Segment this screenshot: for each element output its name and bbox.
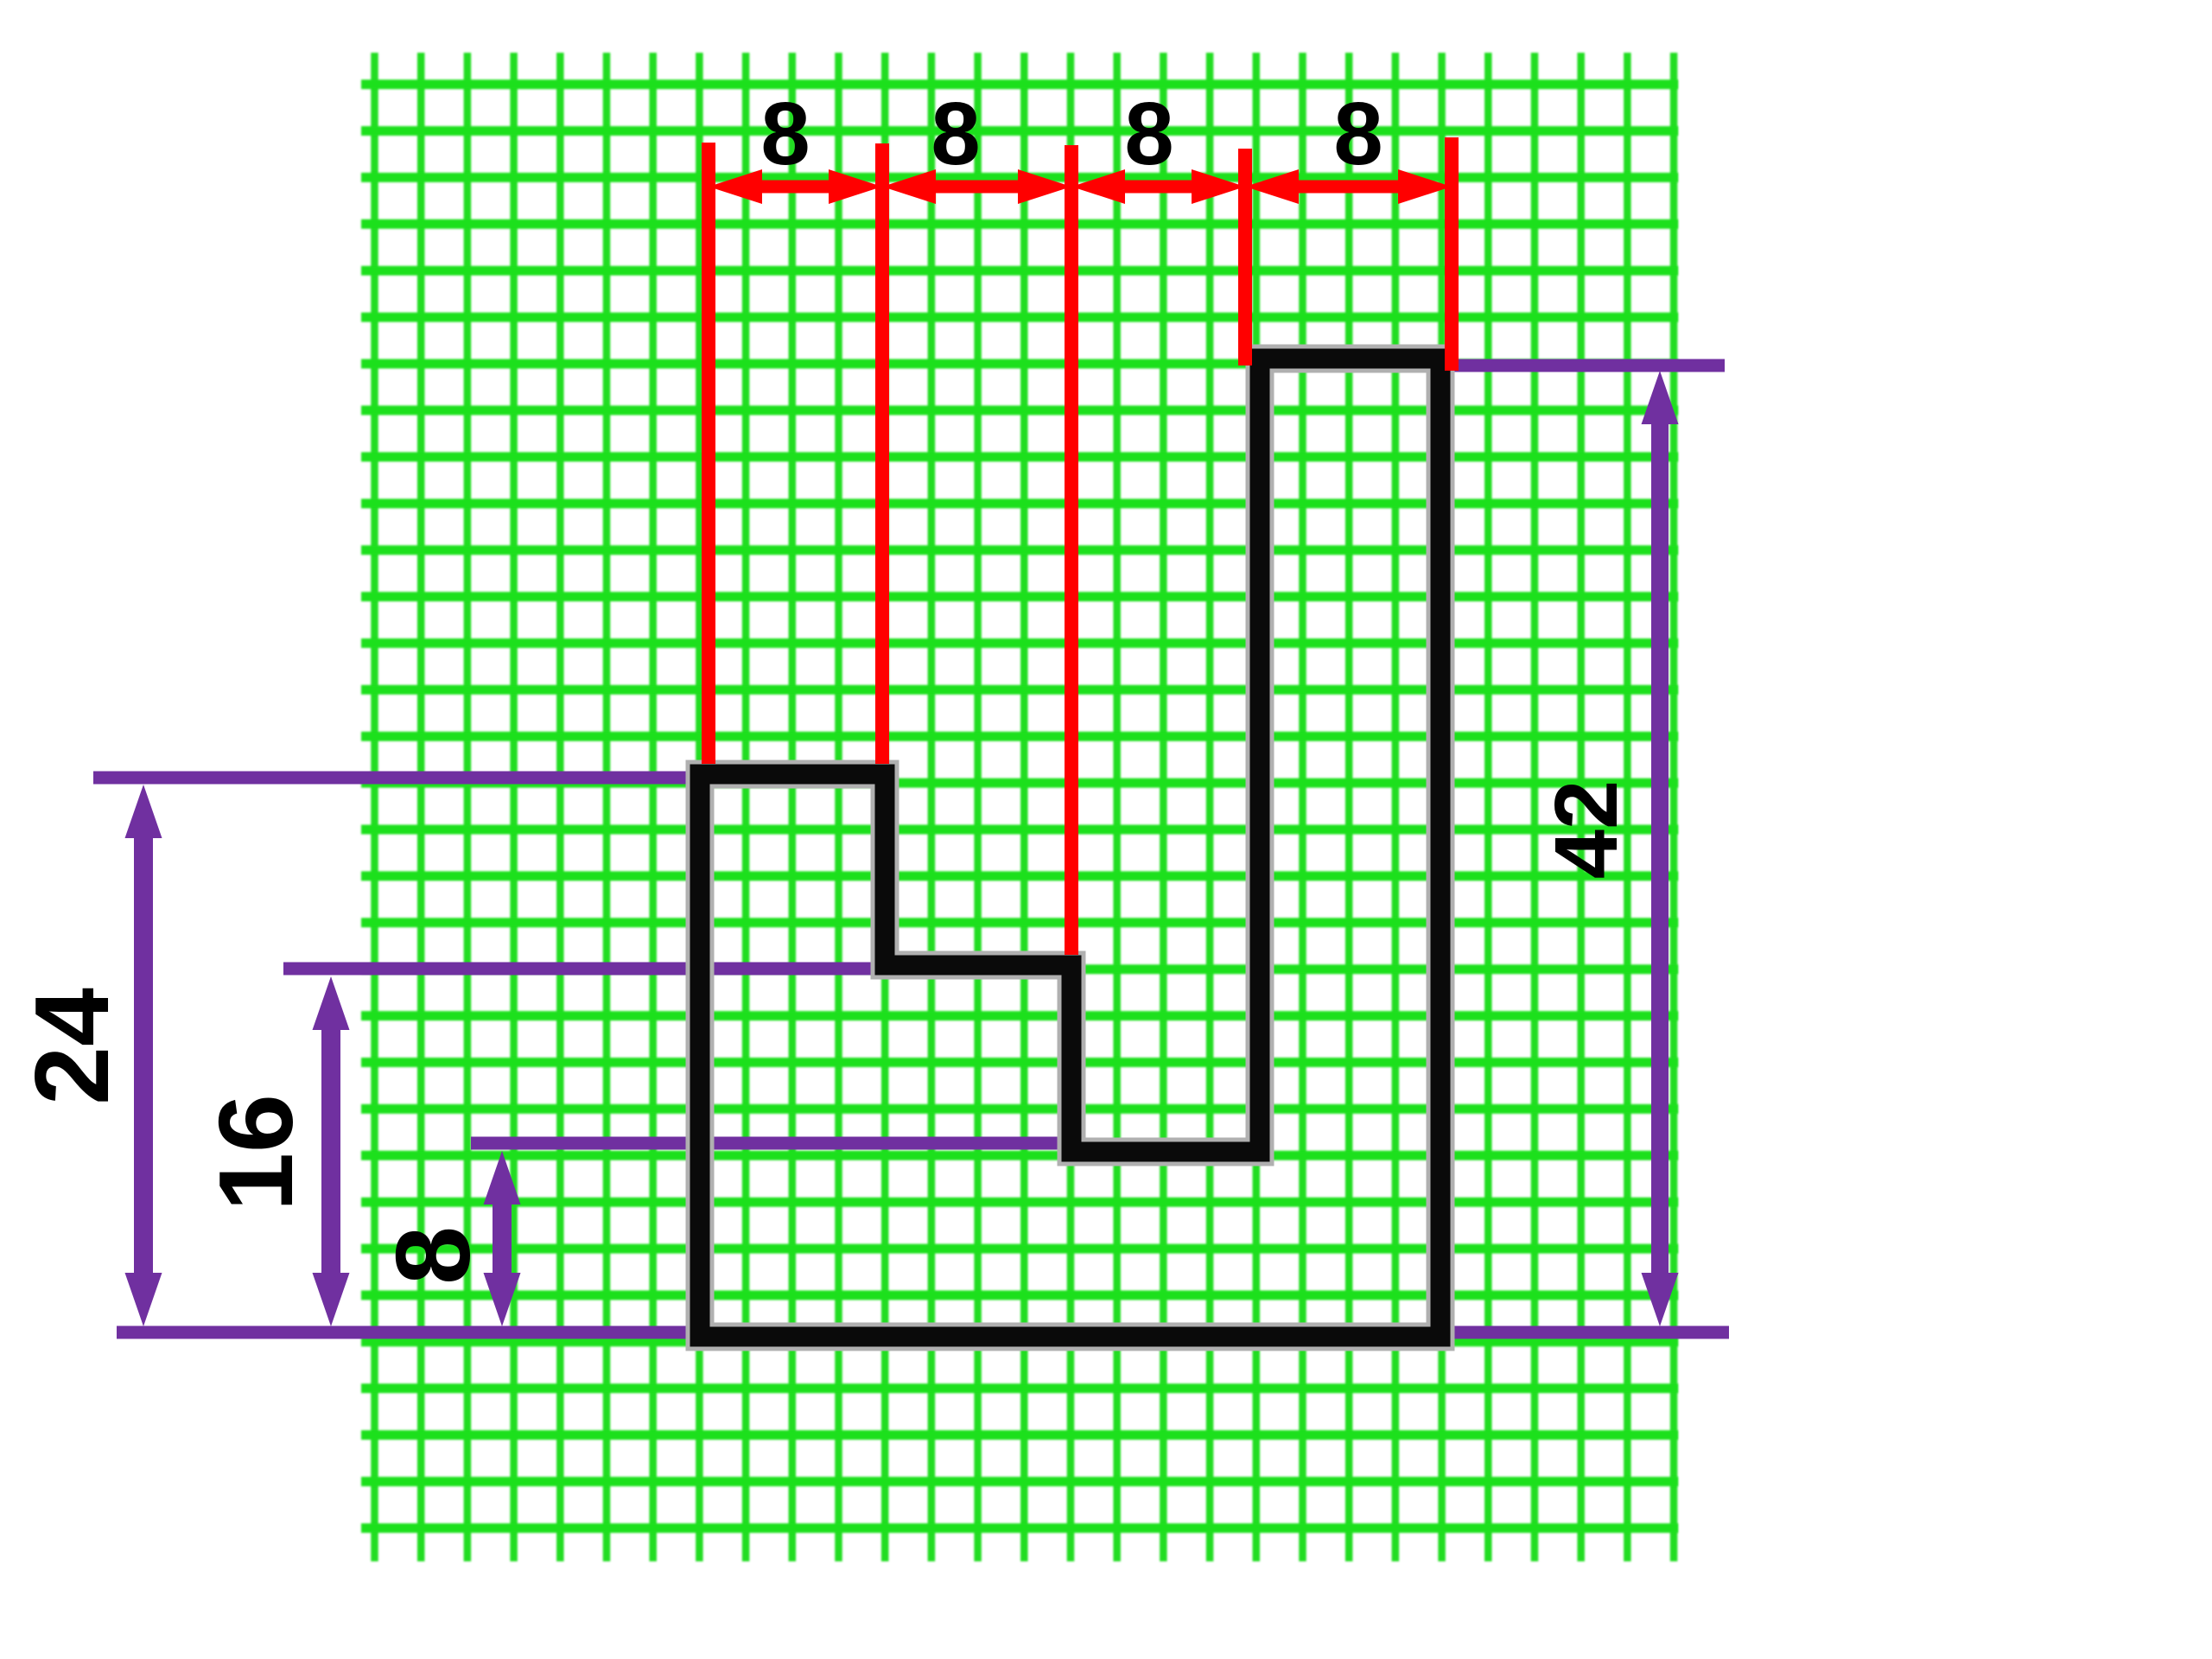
svg-text:42: 42 (1536, 780, 1636, 880)
svg-text:16: 16 (197, 1094, 315, 1211)
svg-text:8: 8 (374, 1226, 492, 1285)
svg-text:8: 8 (1124, 84, 1173, 183)
svg-text:8: 8 (760, 84, 810, 183)
svg-text:8: 8 (931, 84, 980, 183)
svg-text:24: 24 (13, 988, 130, 1105)
svg-text:8: 8 (1333, 84, 1382, 183)
